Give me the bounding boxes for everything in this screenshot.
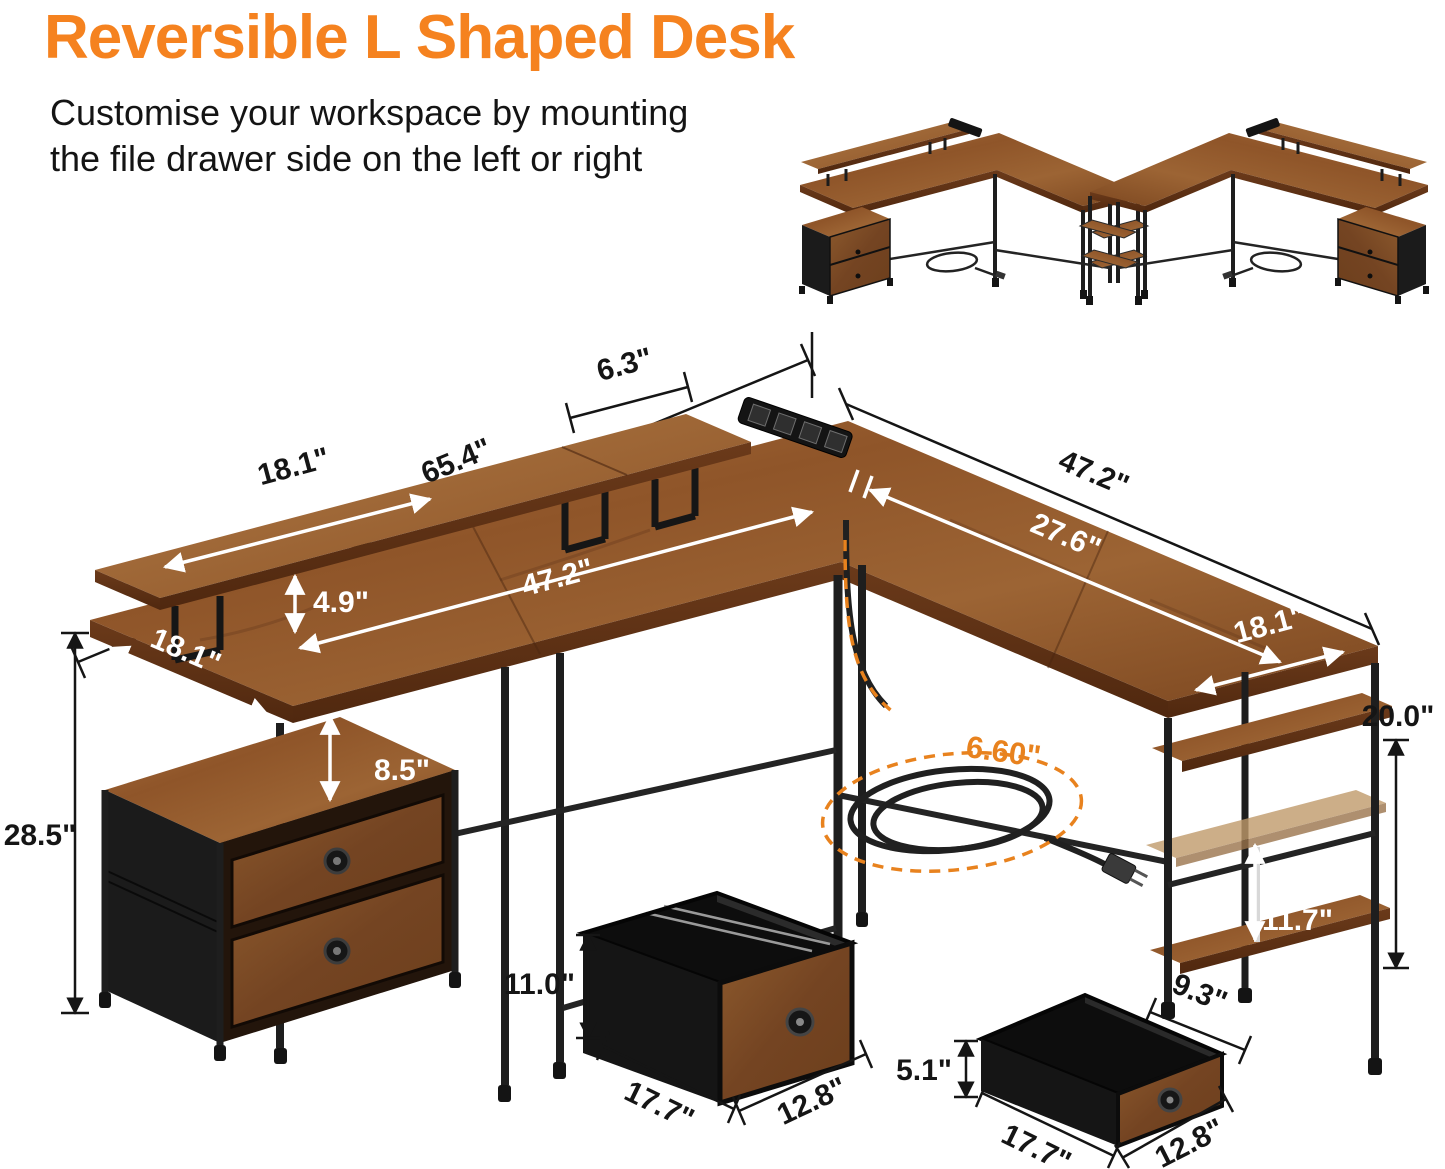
label-shelf-gap: 11.7" <box>1262 904 1333 937</box>
label-hutch-gap: 8.5" <box>374 754 430 787</box>
desk-dimension-illustration: 65.4" 6.3" 47.2" 18.1" 4.9" 47.2" 27.6" … <box>0 0 1445 1169</box>
label-riser-segment: 6.3" <box>593 342 656 388</box>
optional-shelf-position <box>1146 790 1386 867</box>
label-small-drawer-height: 5.1" <box>896 1054 952 1087</box>
label-right-wing-top: 47.2" <box>1054 444 1134 503</box>
label-tower-height: 20.0" <box>1362 700 1435 733</box>
label-small-drawer-width: 17.7" <box>996 1118 1076 1169</box>
label-file-drawer-height: 11.0" <box>504 968 575 1001</box>
label-riser-length: 18.1" <box>254 441 333 492</box>
mini-desk-right-variant <box>1080 117 1429 305</box>
label-riser-height: 4.9" <box>313 586 369 619</box>
label-overall-height: 28.5" <box>4 819 77 852</box>
mini-desk-left-variant <box>799 117 1148 305</box>
right-shelf-tower <box>1146 663 1392 1075</box>
dim-tower-height <box>1383 740 1409 968</box>
product-diagram-page: Reversible L Shaped Desk Customise your … <box>0 0 1445 1169</box>
label-shelf-depth: 9.3" <box>1167 967 1231 1019</box>
